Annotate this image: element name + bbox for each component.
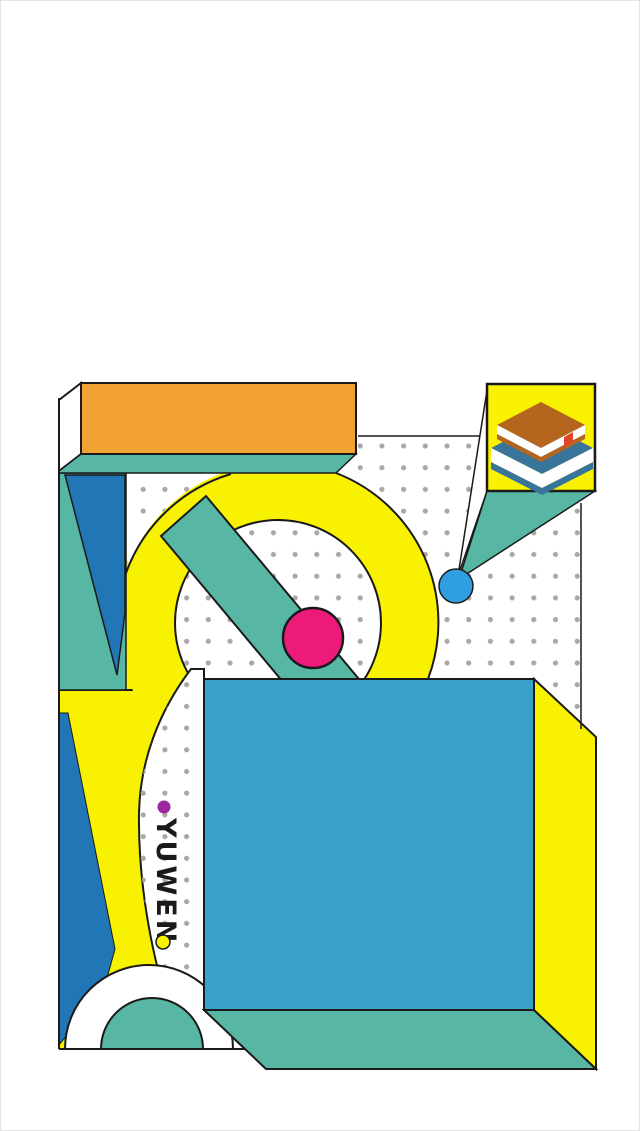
yellow-bullet-icon — [156, 935, 170, 949]
blue-dot — [439, 569, 473, 603]
memphis-illustration: YUWEN — [1, 1, 640, 1131]
purple-bullet-icon — [158, 801, 171, 814]
box-bottom-face — [204, 1010, 596, 1069]
brand-label: YUWEN — [150, 817, 181, 945]
box-right-face — [534, 679, 596, 1069]
bar-bottom-face — [59, 454, 356, 473]
orange-bar — [81, 383, 356, 454]
splash-screen: YUWEN — [0, 0, 640, 1131]
pink-circle — [283, 608, 343, 668]
box-front-face — [204, 679, 534, 1010]
